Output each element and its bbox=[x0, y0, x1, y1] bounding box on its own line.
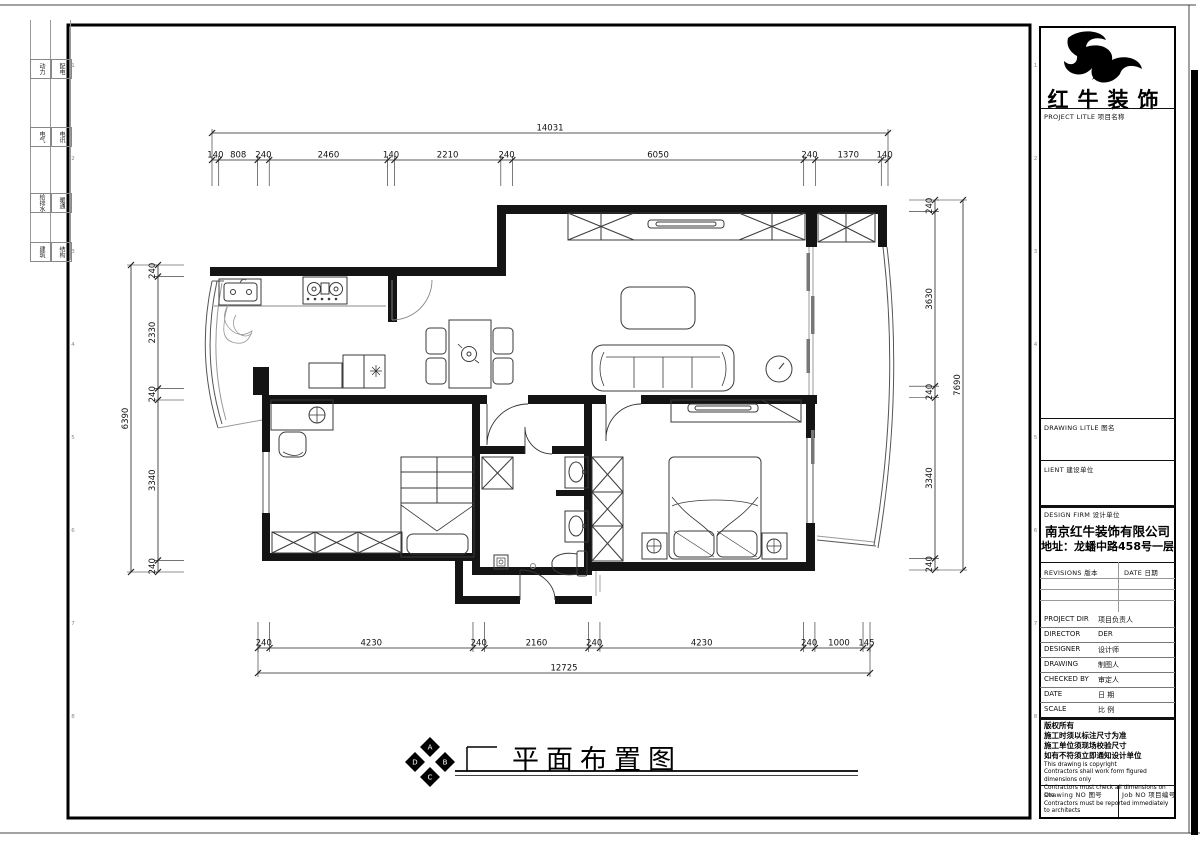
revisions-date-label: DATE 日期 bbox=[1124, 567, 1158, 577]
wall-clock bbox=[766, 356, 792, 382]
floor-drain bbox=[494, 555, 536, 569]
discipline-cell: 给排水 bbox=[30, 193, 52, 213]
note-line-cn: 施工单位须现场校验尺寸 bbox=[1044, 741, 1172, 751]
svg-text:4230: 4230 bbox=[691, 639, 713, 649]
wardrobe-bedroom2 bbox=[272, 532, 402, 553]
shower bbox=[482, 457, 513, 489]
job-no-label: Job NO 项目编号 bbox=[1122, 789, 1175, 799]
kitchen-sink bbox=[219, 279, 261, 305]
double-bed bbox=[669, 457, 761, 559]
svg-text:1370: 1370 bbox=[837, 151, 859, 161]
design-firm-label: DESIGN FIRM 设计单位 bbox=[1044, 509, 1120, 519]
discipline-cell: 暖通 bbox=[50, 193, 72, 213]
svg-text:A: A bbox=[428, 744, 433, 752]
discipline-label: 结构 bbox=[58, 246, 64, 258]
discipline-label: 暖通 bbox=[58, 197, 64, 209]
svg-text:240: 240 bbox=[255, 151, 271, 161]
svg-text:240: 240 bbox=[925, 198, 935, 214]
svg-text:7690: 7690 bbox=[953, 374, 963, 396]
desk bbox=[271, 400, 333, 457]
tb-row-label: DATE bbox=[1044, 690, 1062, 698]
discipline-label: 建筑 bbox=[38, 246, 44, 258]
nightstand-right bbox=[762, 533, 787, 559]
tb-row-label: DIRECTOR bbox=[1044, 630, 1080, 638]
svg-text:12725: 12725 bbox=[550, 664, 577, 674]
tb-row-value: 项目负责人 bbox=[1098, 615, 1133, 625]
discipline-label: 动力 bbox=[38, 63, 44, 75]
svg-text:140: 140 bbox=[877, 151, 893, 161]
tb-row-value: 设计师 bbox=[1098, 645, 1119, 655]
svg-text:2160: 2160 bbox=[526, 639, 548, 649]
tb-row-label: PROJECT DIR bbox=[1044, 615, 1089, 623]
svg-text:2: 2 bbox=[71, 156, 75, 162]
discipline-label: 电气 bbox=[38, 131, 44, 143]
note-line-cn: 施工时须以标注尺寸为准 bbox=[1044, 731, 1172, 741]
brand-logo-icon bbox=[1040, 30, 1175, 86]
svg-text:240: 240 bbox=[925, 556, 935, 572]
svg-text:B: B bbox=[443, 759, 448, 767]
svg-text:5: 5 bbox=[1034, 435, 1038, 441]
discipline-cell: 建筑 bbox=[30, 242, 52, 262]
note-line-en: This drawing is copyright bbox=[1044, 762, 1172, 770]
svg-text:6: 6 bbox=[1034, 528, 1038, 534]
refrigerator bbox=[343, 355, 385, 388]
project-title-label: PROJECT LITLE 项目名称 bbox=[1044, 111, 1125, 121]
tb-row-value: 制图人 bbox=[1098, 660, 1119, 670]
wardrobe-master bbox=[592, 457, 623, 561]
svg-text:140: 140 bbox=[383, 151, 399, 161]
svg-text:7: 7 bbox=[1034, 621, 1038, 627]
svg-text:2: 2 bbox=[1034, 156, 1038, 162]
svg-text:4230: 4230 bbox=[360, 639, 382, 649]
svg-text:240: 240 bbox=[498, 151, 514, 161]
svg-text:3: 3 bbox=[1034, 249, 1038, 255]
svg-text:1: 1 bbox=[1034, 63, 1038, 69]
tb-row-value: 日 期 bbox=[1098, 690, 1114, 700]
grid-reference-numbers: 1122334455667788 bbox=[71, 63, 1038, 720]
dining-table bbox=[426, 320, 513, 388]
svg-text:4: 4 bbox=[1034, 342, 1038, 348]
svg-text:1000: 1000 bbox=[828, 639, 850, 649]
tb-row-value: 审定人 bbox=[1098, 675, 1119, 685]
sofa bbox=[592, 345, 734, 391]
svg-text:6050: 6050 bbox=[647, 151, 669, 161]
tv-cabinet-living bbox=[568, 213, 805, 240]
kitchen-cabinet bbox=[309, 363, 342, 388]
coffee-table bbox=[621, 287, 695, 329]
walls bbox=[210, 205, 887, 604]
svg-text:7: 7 bbox=[71, 621, 75, 627]
plant-scribble bbox=[224, 305, 252, 343]
sheet-border bbox=[0, 5, 1200, 833]
svg-text:6390: 6390 bbox=[121, 408, 131, 430]
svg-text:D: D bbox=[412, 759, 417, 767]
client-label: LIENT 建设单位 bbox=[1044, 464, 1094, 474]
drawing-no-label: Drawing NO 图号 bbox=[1044, 789, 1102, 799]
tb-row-value: DER bbox=[1098, 630, 1113, 638]
compass-icon: ABCD bbox=[405, 737, 455, 787]
svg-text:240: 240 bbox=[471, 639, 487, 649]
sheet-edge-bar bbox=[1191, 70, 1198, 835]
svg-text:8: 8 bbox=[71, 714, 75, 720]
note-line-en: Contractors shall work form figured dime… bbox=[1044, 769, 1172, 785]
balcony-cabinet bbox=[818, 213, 875, 242]
discipline-label: 配电 bbox=[58, 63, 64, 75]
svg-text:6: 6 bbox=[71, 528, 75, 534]
discipline-cell: 电气 bbox=[30, 127, 52, 147]
svg-text:145: 145 bbox=[858, 639, 874, 649]
company-address: 地址：龙蟠中路458号一层 bbox=[1040, 538, 1175, 554]
svg-text:3630: 3630 bbox=[925, 288, 935, 310]
revisions-label: REVISIONS 版本 bbox=[1044, 567, 1098, 577]
svg-text:808: 808 bbox=[230, 151, 246, 161]
svg-text:2460: 2460 bbox=[318, 151, 340, 161]
svg-text:8: 8 bbox=[1034, 714, 1038, 720]
note-line-cn: 如有不符须立即通知设计单位 bbox=[1044, 751, 1172, 761]
note-line-en: Contractors must be reported immediately… bbox=[1044, 801, 1172, 817]
floor-plan-canvas: 1408082402460140221024060502401370140140… bbox=[0, 0, 1200, 844]
svg-text:240: 240 bbox=[586, 639, 602, 649]
svg-text:5: 5 bbox=[71, 435, 75, 441]
svg-text:2330: 2330 bbox=[148, 322, 158, 344]
svg-text:C: C bbox=[428, 774, 433, 782]
svg-text:240: 240 bbox=[801, 639, 817, 649]
svg-text:3340: 3340 bbox=[925, 467, 935, 489]
note-line-cn: 版权所有 bbox=[1044, 721, 1172, 731]
svg-text:3340: 3340 bbox=[148, 469, 158, 491]
gas-stove bbox=[303, 277, 347, 304]
svg-text:140: 140 bbox=[207, 151, 223, 161]
discipline-cell: 结构 bbox=[50, 242, 72, 262]
svg-text:240: 240 bbox=[801, 151, 817, 161]
tb-row-label: DESIGNER bbox=[1044, 645, 1080, 653]
discipline-cell: 动力 bbox=[30, 59, 52, 79]
brand-name: 红牛装饰 bbox=[1040, 84, 1175, 114]
tb-row-label: SCALE bbox=[1044, 705, 1066, 713]
svg-text:240: 240 bbox=[148, 386, 158, 402]
drawing-title-label: DRAWING LITLE 图名 bbox=[1044, 422, 1115, 432]
discipline-label: 电讯 bbox=[58, 131, 64, 143]
tb-row-value: 比 例 bbox=[1098, 705, 1114, 715]
copyright-notes: 版权所有施工时须以标注尺寸为准施工单位须现场校验尺寸如有不符须立即通知设计单位 … bbox=[1044, 721, 1172, 816]
discipline-cell: 电讯 bbox=[50, 127, 72, 147]
svg-text:4: 4 bbox=[71, 342, 75, 348]
drawing-sheet: 1408082402460140221024060502401370140140… bbox=[0, 0, 1200, 844]
svg-text:2210: 2210 bbox=[437, 151, 459, 161]
discipline-cell: 配电 bbox=[50, 59, 72, 79]
nightstand-left bbox=[642, 533, 667, 559]
plan-title: 平面布置图 bbox=[512, 738, 682, 777]
discipline-label: 给排水 bbox=[38, 194, 44, 212]
tb-row-label: CHECKED BY bbox=[1044, 675, 1089, 683]
svg-text:14031: 14031 bbox=[536, 124, 563, 134]
single-bed bbox=[401, 457, 474, 557]
svg-text:240: 240 bbox=[925, 384, 935, 400]
tb-row-label: DRAWING bbox=[1044, 660, 1078, 668]
